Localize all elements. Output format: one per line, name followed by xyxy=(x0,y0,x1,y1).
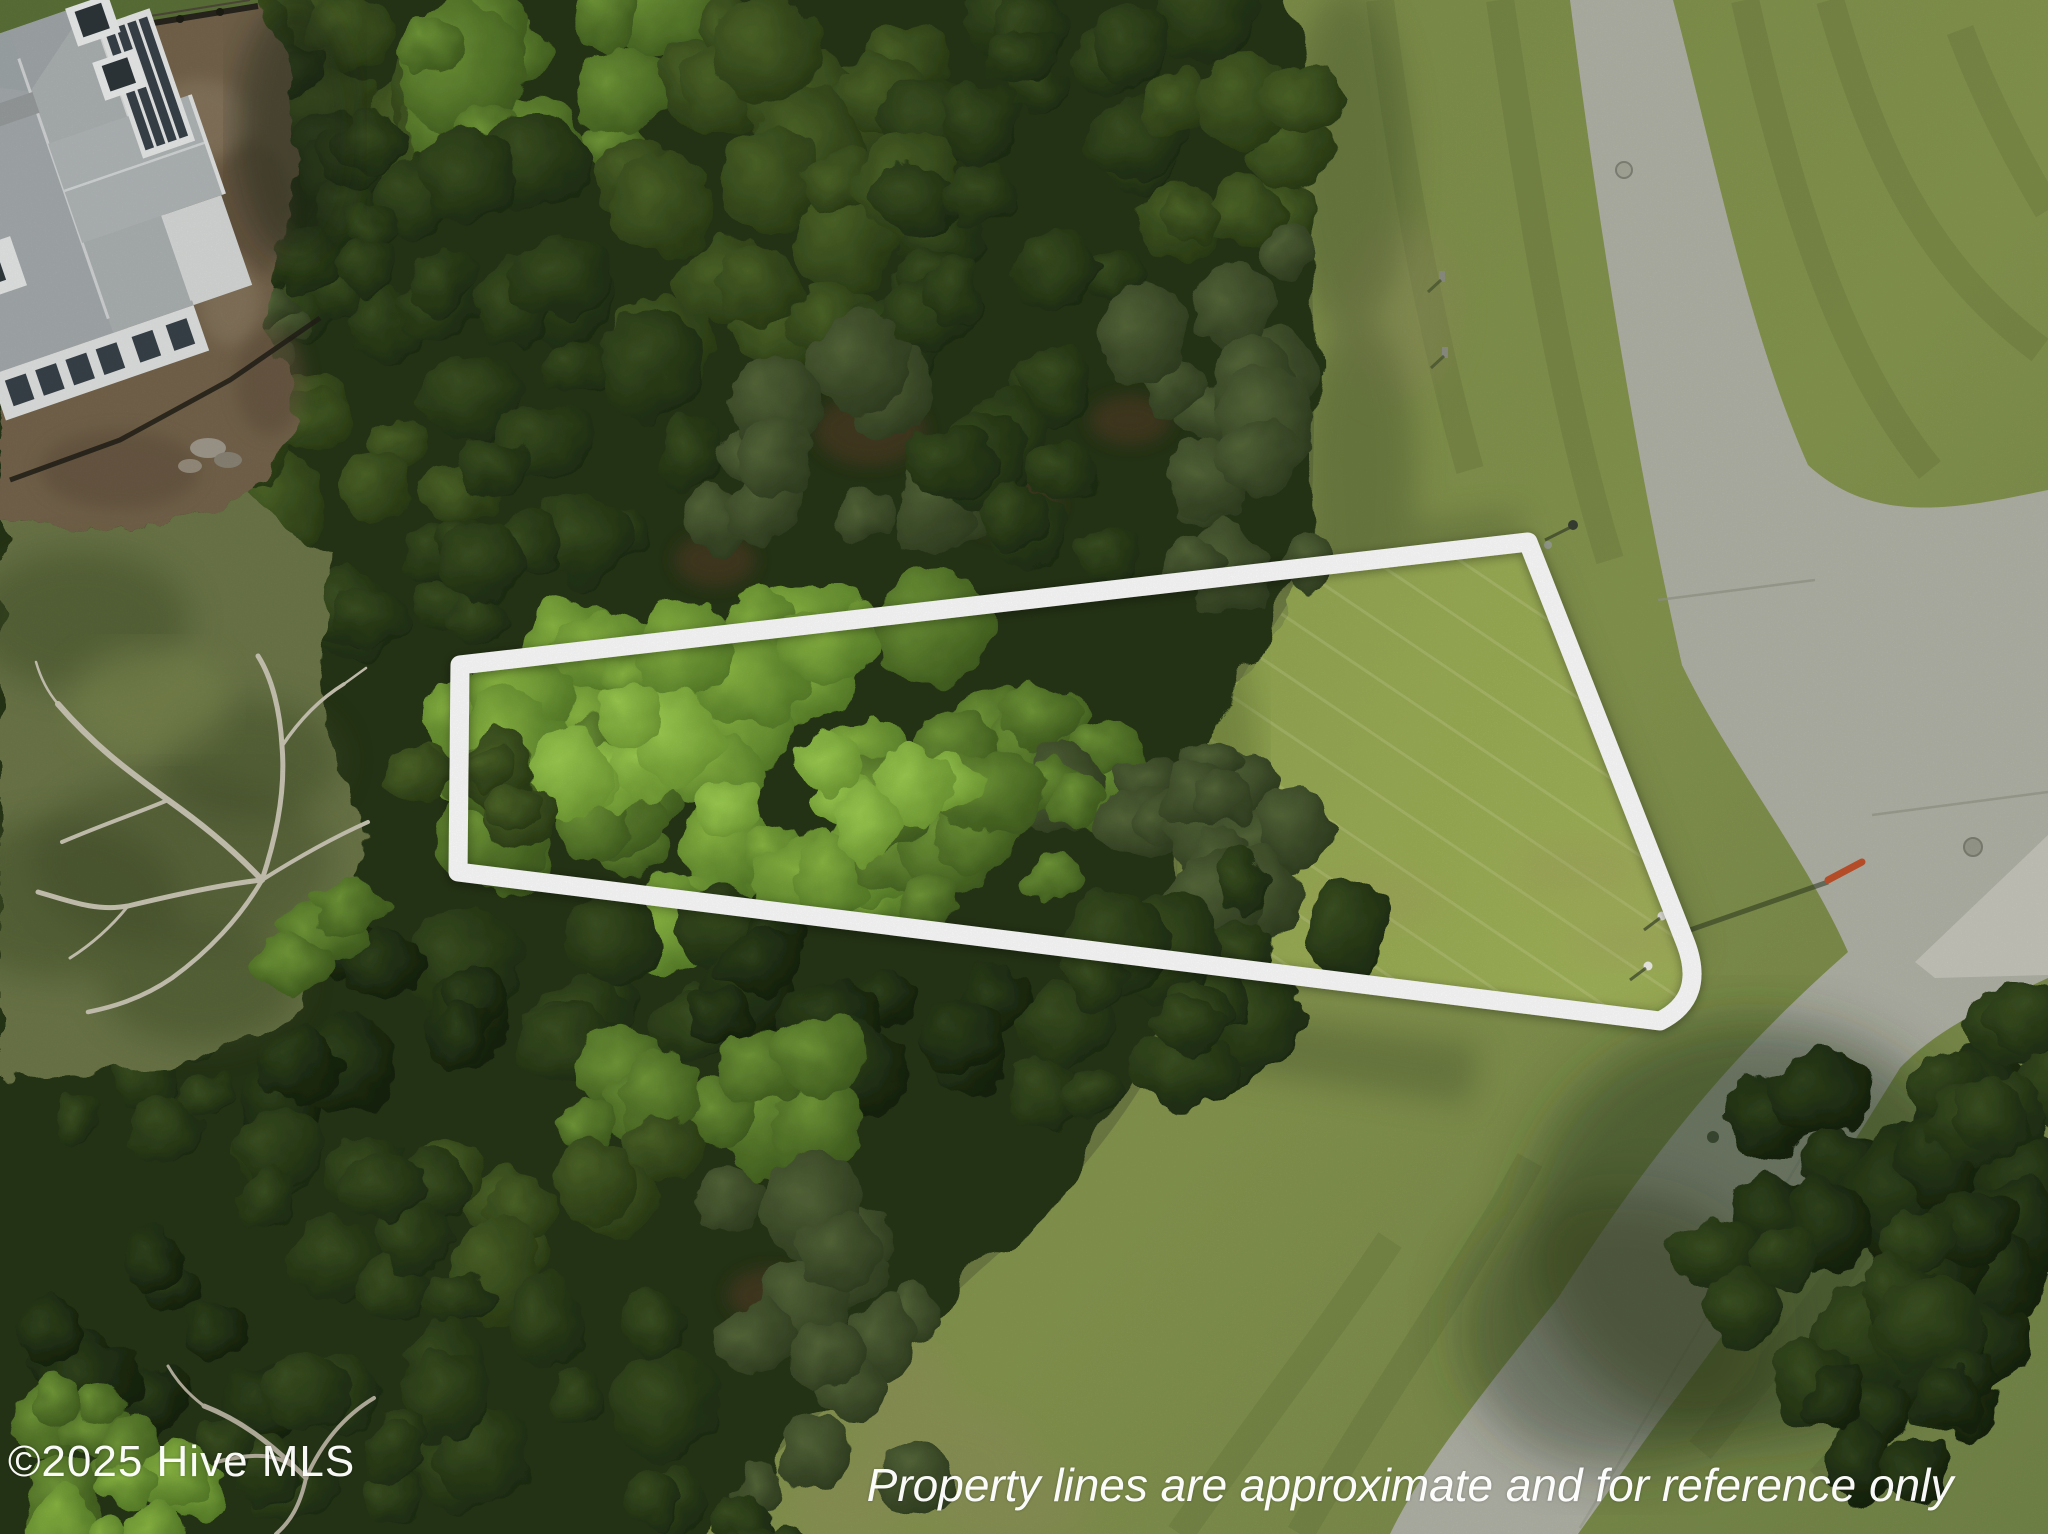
aerial-scene xyxy=(0,0,2048,1534)
photo-grain xyxy=(0,0,2048,1534)
disclaimer-text: Property lines are approximate and for r… xyxy=(860,1458,1960,1512)
watermark: ©2025 Hive MLS xyxy=(8,1437,355,1487)
aerial-photo: ©2025 Hive MLS Property lines are approx… xyxy=(0,0,2048,1534)
